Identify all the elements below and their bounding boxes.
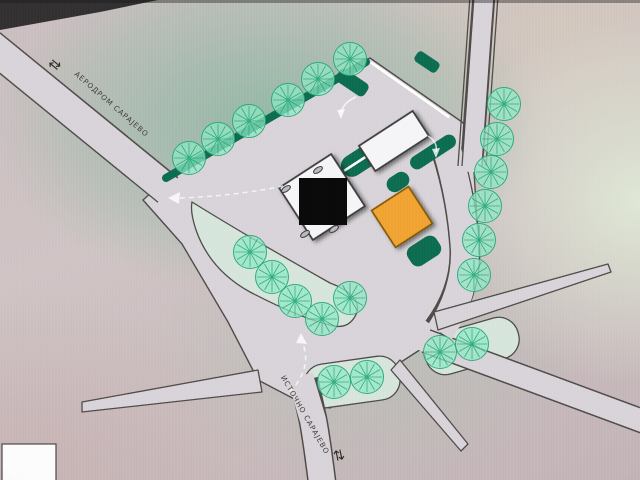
tree-icon <box>463 224 496 257</box>
tree-icon <box>475 156 508 189</box>
tree-icon <box>469 190 502 223</box>
east-direction-arrow-icon: ⇅ <box>332 447 347 465</box>
road-west-spur <box>82 370 262 412</box>
site-plan-photo: ⇄ АЕРОДРОМ САРАЈЕВО ИСТОЧНО САРАЈЕВО ⇅ <box>0 0 640 480</box>
tree-icon <box>481 123 514 156</box>
photo-top-edge-shadow <box>0 0 640 3</box>
tree-icon <box>488 88 521 121</box>
tree-icon <box>334 43 367 76</box>
tree-icon <box>234 236 267 269</box>
tree-icon <box>456 328 489 361</box>
tree-icon <box>458 259 491 292</box>
tree-icon <box>351 361 384 394</box>
tree-icon <box>424 336 457 369</box>
redaction-square <box>299 178 347 225</box>
tree-icon <box>318 366 351 399</box>
tree-icon <box>202 123 235 156</box>
road-southeast-spur <box>391 360 468 451</box>
tree-icon <box>306 303 339 336</box>
tree-icon <box>173 142 206 175</box>
photo-bezel-band <box>0 0 158 30</box>
legend-box <box>2 444 56 480</box>
tree-icon <box>272 84 305 117</box>
tree-icon <box>302 63 335 96</box>
site-plan-drawing: ⇄ АЕРОДРОМ САРАЈЕВО ИСТОЧНО САРАЈЕВО ⇅ <box>0 0 640 480</box>
tree-icon <box>233 105 266 138</box>
tree-icon <box>334 282 367 315</box>
